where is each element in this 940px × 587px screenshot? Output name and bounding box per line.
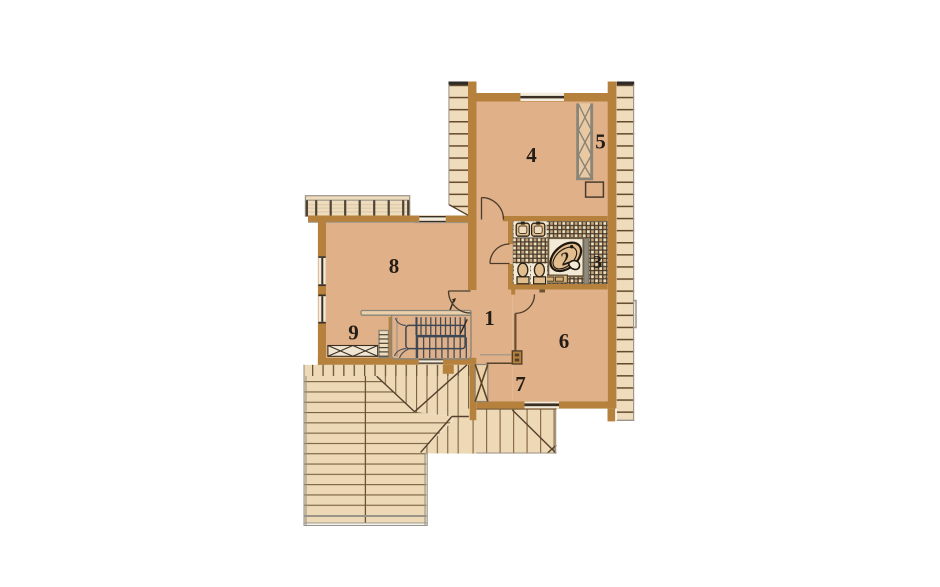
svg-text:1: 1 bbox=[484, 306, 495, 330]
svg-text:7: 7 bbox=[515, 372, 526, 396]
svg-text:9: 9 bbox=[348, 321, 359, 345]
svg-text:8: 8 bbox=[389, 254, 400, 278]
svg-text:4: 4 bbox=[526, 143, 537, 167]
svg-text:5: 5 bbox=[595, 130, 606, 154]
svg-text:3: 3 bbox=[593, 252, 602, 272]
svg-text:6: 6 bbox=[559, 329, 570, 353]
